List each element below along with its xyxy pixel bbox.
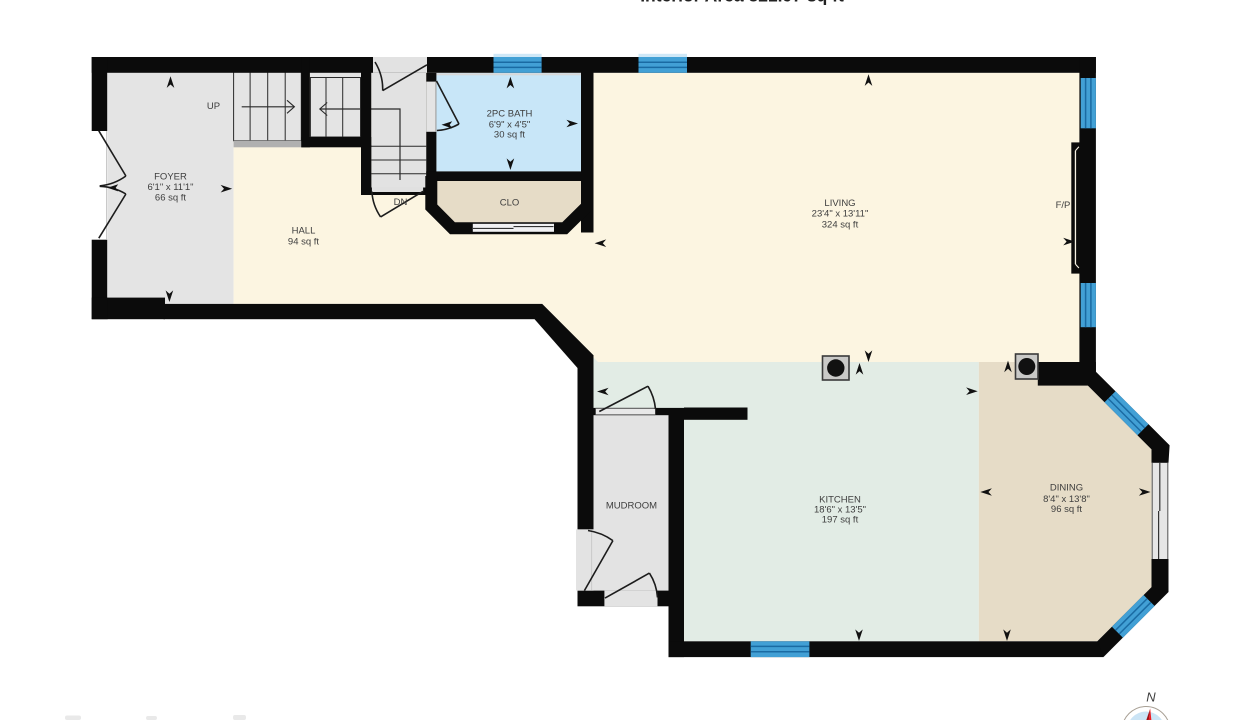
svg-text:UP: UP (207, 101, 220, 112)
svg-text:HALL: HALL (292, 226, 316, 237)
svg-text:MUDROOM: MUDROOM (606, 500, 657, 511)
svg-text:6'1" x 11'1": 6'1" x 11'1" (147, 182, 193, 193)
svg-text:N: N (1146, 690, 1156, 705)
svg-text:DINING: DINING (1050, 483, 1083, 494)
svg-text:CLO: CLO (500, 198, 520, 209)
svg-text:94 sq ft: 94 sq ft (288, 236, 320, 247)
svg-text:197 sq ft: 197 sq ft (822, 515, 859, 526)
svg-text:DN: DN (394, 197, 408, 208)
svg-text:324 sq ft: 324 sq ft (822, 220, 859, 231)
svg-text:LIVING: LIVING (824, 198, 855, 209)
svg-text:FOYER: FOYER (154, 171, 187, 182)
svg-text:2PC BATH: 2PC BATH (487, 109, 533, 120)
svg-text:96 sq ft: 96 sq ft (1051, 504, 1083, 515)
svg-text:Interior Area 821.97 sq ft: Interior Area 821.97 sq ft (640, 0, 844, 6)
svg-text:30 sq ft: 30 sq ft (494, 130, 526, 141)
svg-text:66 sq ft: 66 sq ft (155, 193, 187, 204)
svg-text:23'4" x 13'11": 23'4" x 13'11" (812, 209, 869, 220)
svg-text:F/P: F/P (1056, 200, 1071, 211)
